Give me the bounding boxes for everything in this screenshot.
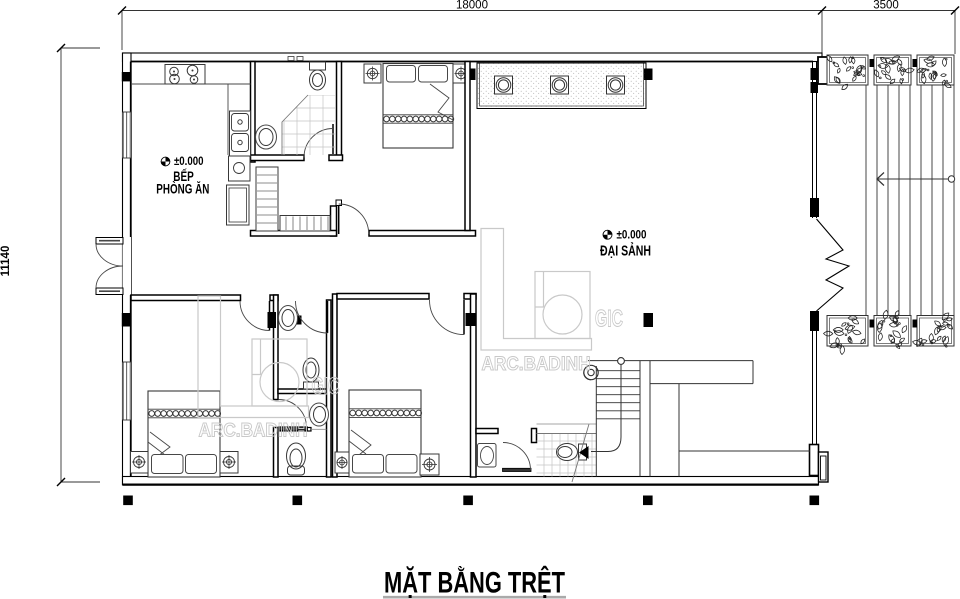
svg-text:11140: 11140 bbox=[0, 246, 12, 277]
svg-text:18000: 18000 bbox=[456, 0, 488, 12]
svg-text:±0.000: ±0.000 bbox=[174, 156, 204, 168]
svg-text:MẶT BẰNG TRỆT: MẶT BẰNG TRỆT bbox=[384, 566, 565, 599]
svg-text:GIC: GIC bbox=[595, 306, 623, 333]
svg-text:PHÒNG ĂN: PHÒNG ĂN bbox=[156, 182, 209, 197]
svg-text:ARC.BADINH: ARC.BADINH bbox=[199, 421, 308, 442]
svg-text:±0.000: ±0.000 bbox=[617, 230, 647, 242]
svg-text:ĐẠI SẢNH: ĐẠI SẢNH bbox=[600, 243, 651, 260]
svg-text:3500: 3500 bbox=[873, 0, 899, 12]
svg-text:ARC.BADINH: ARC.BADINH bbox=[482, 354, 591, 375]
svg-text:GIC: GIC bbox=[312, 373, 340, 400]
